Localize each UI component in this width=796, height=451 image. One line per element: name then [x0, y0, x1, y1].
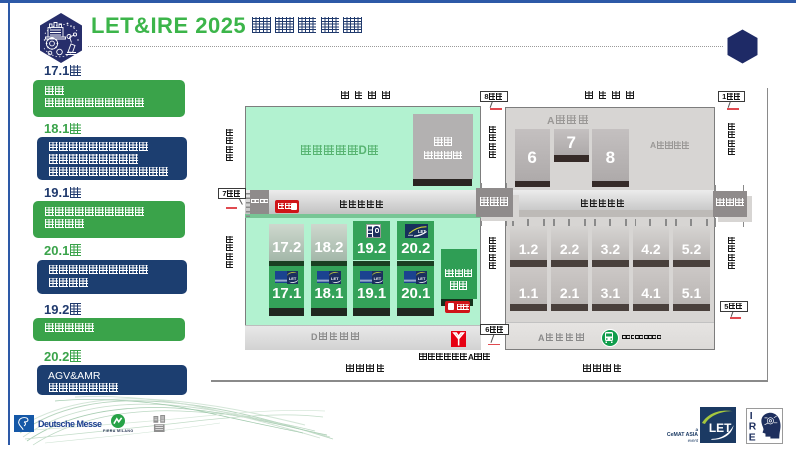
- svg-text:E: E: [748, 433, 755, 442]
- svg-text:LET: LET: [418, 229, 426, 234]
- svg-text:I: I: [749, 411, 752, 422]
- svg-text:R: R: [748, 422, 756, 433]
- svg-text:LET: LET: [709, 420, 732, 434]
